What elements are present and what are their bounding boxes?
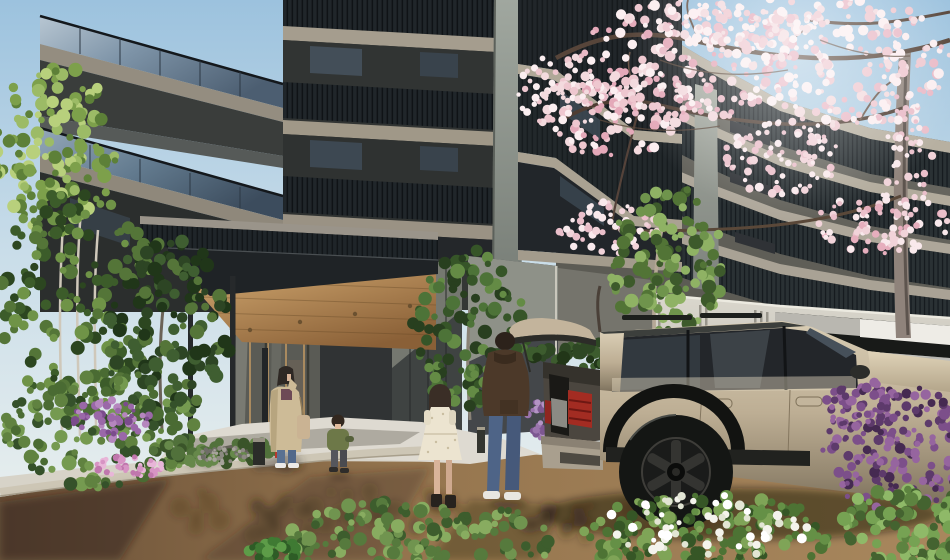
woman-sneaker: [288, 463, 299, 468]
man-hair: [495, 332, 515, 350]
tower-column: [492, 0, 522, 300]
toddler-face: [335, 424, 341, 429]
girl-leg: [446, 460, 452, 494]
toddler-shoe: [329, 467, 338, 472]
door-handle: [796, 397, 822, 406]
tower-window: [420, 52, 458, 78]
toddler-pants: [340, 450, 347, 467]
man-sneaker: [483, 491, 500, 499]
bollard-light: [477, 427, 485, 453]
woman-jeans: [288, 450, 296, 464]
tower-window: [420, 146, 458, 172]
woman-top: [281, 389, 292, 400]
person-shadow: [328, 473, 350, 480]
bollard-top: [477, 427, 485, 430]
man-sneaker: [504, 492, 521, 500]
woman-jeans: [277, 450, 285, 464]
bollard-top: [253, 438, 265, 442]
tote-bag: [297, 415, 310, 439]
toddler-arm: [345, 436, 354, 442]
girl-sleeve: [449, 410, 456, 425]
girl-sleeve: [424, 410, 431, 425]
hoodie-pocket: [500, 400, 518, 414]
taillight-left: [545, 400, 551, 424]
cargo-box: [551, 398, 567, 428]
bollard-light: [253, 438, 265, 465]
side-mirror: [850, 365, 870, 379]
roof-rail: [622, 315, 692, 320]
tower-window: [310, 140, 362, 170]
scene-svg: [0, 0, 950, 560]
toddler-shoe: [340, 468, 349, 473]
tower-window: [310, 46, 362, 76]
rendering-canvas: [0, 0, 950, 560]
center-cap: [672, 468, 680, 476]
man-jeans: [505, 416, 521, 490]
roof-rail: [700, 313, 762, 318]
girl-leg: [434, 460, 440, 494]
toddler-pants: [331, 450, 338, 467]
woman-sneaker: [275, 463, 286, 468]
